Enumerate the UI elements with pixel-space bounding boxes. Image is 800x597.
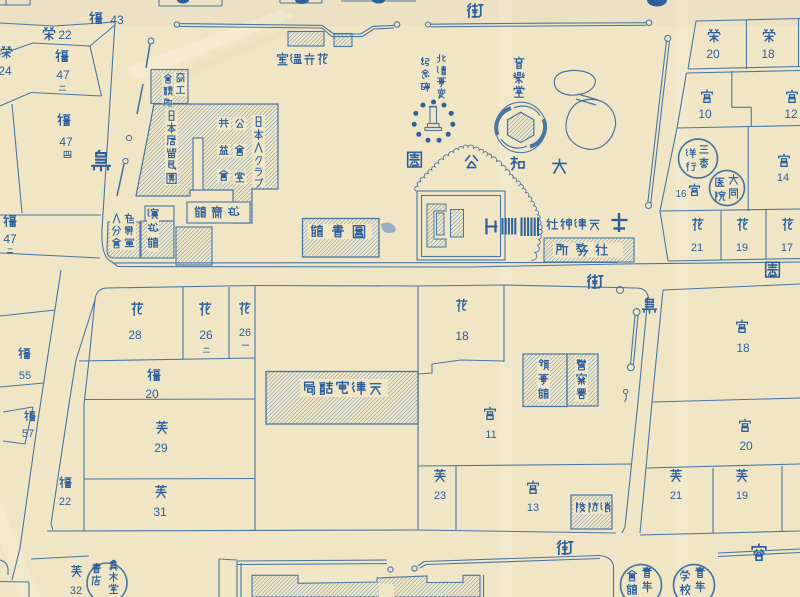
svg-text:13: 13 <box>527 502 539 514</box>
svg-text:47: 47 <box>3 232 17 246</box>
svg-text:18: 18 <box>455 329 469 343</box>
svg-text:10: 10 <box>698 107 712 121</box>
svg-text:21: 21 <box>691 242 703 254</box>
svg-text:18: 18 <box>761 47 775 61</box>
svg-text:47: 47 <box>59 135 73 149</box>
svg-text:20: 20 <box>706 47 720 61</box>
svg-text:23: 23 <box>434 490 446 502</box>
svg-text:21: 21 <box>670 490 682 502</box>
svg-text:12: 12 <box>784 107 798 121</box>
svg-text:26: 26 <box>199 328 213 342</box>
svg-text:26: 26 <box>239 327 251 339</box>
svg-text:57: 57 <box>22 428 34 440</box>
svg-text:28: 28 <box>128 328 142 342</box>
svg-text:17: 17 <box>781 242 793 254</box>
svg-text:14: 14 <box>777 172 789 184</box>
svg-text:20: 20 <box>739 439 753 453</box>
svg-text:47: 47 <box>56 68 70 82</box>
svg-text:55: 55 <box>19 370 31 382</box>
svg-text:18: 18 <box>736 341 750 355</box>
svg-text:22: 22 <box>59 496 71 508</box>
svg-text:22: 22 <box>58 28 72 42</box>
svg-text:24: 24 <box>0 64 12 78</box>
svg-text:32: 32 <box>70 585 82 597</box>
svg-text:19: 19 <box>736 242 748 254</box>
svg-text:19: 19 <box>736 490 748 502</box>
svg-text:43: 43 <box>110 13 124 27</box>
svg-text:11: 11 <box>485 429 496 441</box>
svg-text:31: 31 <box>153 505 167 519</box>
svg-text:20: 20 <box>145 387 159 401</box>
svg-text:16: 16 <box>675 189 687 200</box>
svg-text:29: 29 <box>154 441 168 455</box>
